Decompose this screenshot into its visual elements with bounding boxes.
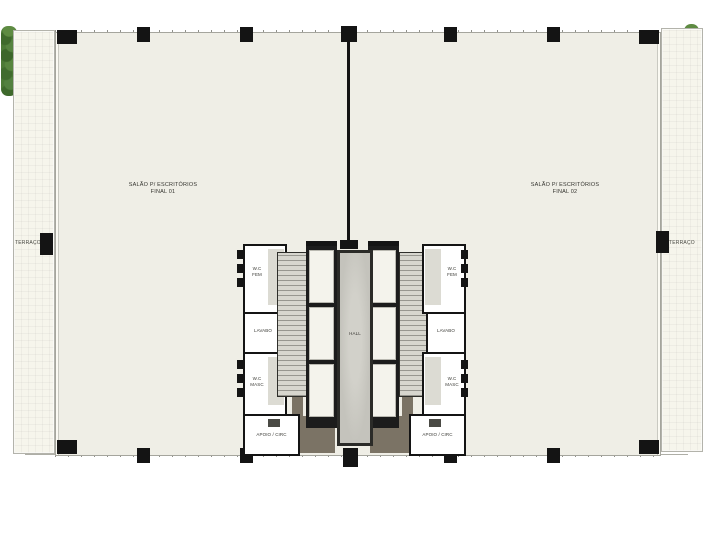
structural-column [656, 231, 669, 253]
office-label-final-01: SALÃO P/ ESCRITÓRIOS FINAL 01 [98, 182, 228, 196]
structural-column [40, 233, 53, 255]
office-02-number: FINAL 02 [500, 189, 630, 196]
wc-fixture [237, 360, 244, 369]
structural-column [639, 30, 659, 44]
wc-fixture [461, 374, 468, 383]
wc-fixture [461, 360, 468, 369]
wc-partition [425, 249, 441, 305]
elevator-car [371, 250, 396, 303]
hall-corridor: HALL [337, 250, 373, 446]
wc-fixture [461, 388, 468, 397]
room-lavabo-right: LAVABO [426, 312, 466, 354]
elevator-car [309, 364, 334, 417]
wc-fixture [237, 278, 244, 287]
elevator-car [371, 307, 396, 360]
lavabo-right-label: LAVABO [428, 328, 464, 334]
wc-fixture [237, 250, 244, 259]
wc-fixture [461, 250, 468, 259]
structural-column [340, 240, 358, 249]
structural-column [639, 440, 659, 454]
staircase-left [277, 252, 308, 397]
structural-column [444, 27, 457, 42]
room-apoio-right: APOIO / CIRC [409, 414, 466, 456]
hall-label: HALL [340, 331, 370, 337]
service-shaft [429, 419, 441, 427]
wc-fixture [237, 388, 244, 397]
wc-fixture [237, 264, 244, 273]
office-01-name: SALÃO P/ ESCRITÓRIOS [98, 182, 228, 189]
elevator-car [309, 307, 334, 360]
service-shaft [268, 419, 280, 427]
wc-fixture [237, 374, 244, 383]
structural-column [137, 448, 150, 463]
structural-column [57, 440, 77, 454]
room-wc-fem-right: W.C FEM [422, 244, 466, 314]
terrace-right-label: TERRAÇO [669, 240, 695, 246]
apoio-left-label: APOIO / CIRC [245, 432, 298, 438]
lavabo-left-label: LAVABO [245, 328, 281, 334]
structural-column [341, 26, 357, 42]
structural-column [343, 448, 358, 467]
elevator-car [309, 250, 334, 303]
floor-plan: TERRAÇO TERRAÇO SALÃO P/ ESCRITÓRIOS FIN… [0, 0, 713, 535]
office-02-name: SALÃO P/ ESCRITÓRIOS [500, 182, 630, 189]
room-apoio-left: APOIO / CIRC [243, 414, 300, 456]
wc-fixture [461, 278, 468, 287]
structural-column [137, 27, 150, 42]
office-01-number: FINAL 01 [98, 189, 228, 196]
terrace-left-label: TERRAÇO [15, 240, 41, 246]
office-label-final-02: SALÃO P/ ESCRITÓRIOS FINAL 02 [500, 182, 630, 196]
apoio-right-label: APOIO / CIRC [411, 432, 464, 438]
structural-column [57, 30, 77, 44]
structural-column [547, 27, 560, 42]
dividing-wall [347, 41, 350, 247]
wc-fixture [461, 264, 468, 273]
elevator-bank-left [306, 246, 337, 428]
elevator-car [371, 364, 396, 417]
structural-column [240, 27, 253, 42]
structural-column [547, 448, 560, 463]
